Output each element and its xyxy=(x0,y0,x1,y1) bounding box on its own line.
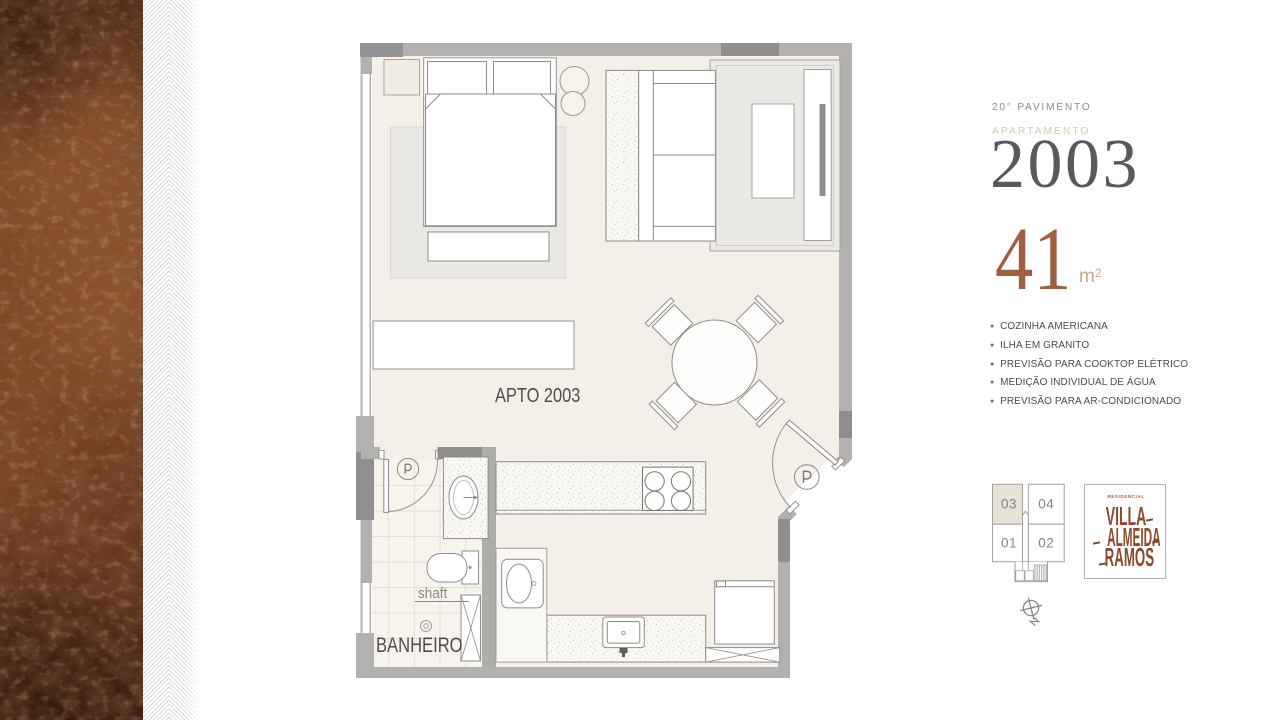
svg-text:04: 04 xyxy=(1038,497,1054,512)
svg-text:01: 01 xyxy=(1001,536,1017,551)
svg-text:02: 02 xyxy=(1038,536,1054,551)
svg-text:03: 03 xyxy=(1001,497,1017,512)
